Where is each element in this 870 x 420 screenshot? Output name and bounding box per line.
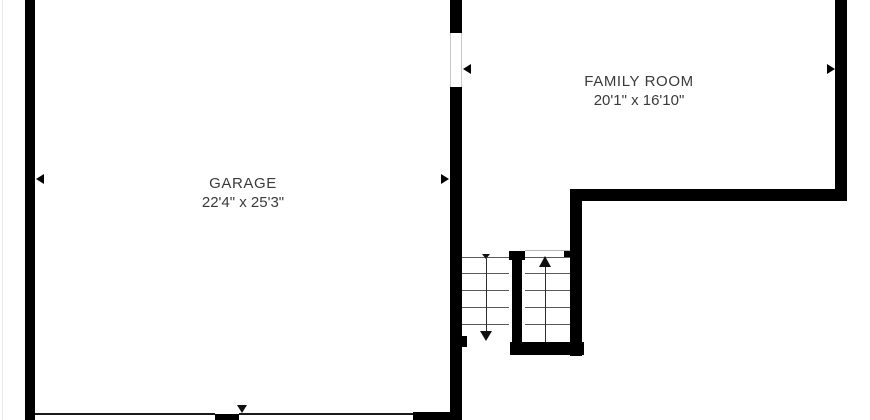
stairs-up-arrow-shaft	[545, 267, 546, 342]
room-name: GARAGE	[202, 174, 284, 193]
room-label-garage: GARAGE 22'4" x 25'3"	[202, 174, 284, 212]
wall-bottom-segment-right	[413, 412, 462, 420]
wall-left-outer	[25, 0, 35, 420]
edge-artifact-line	[2, 0, 3, 420]
room-name: FAMILY ROOM	[584, 72, 693, 91]
tread-line	[525, 307, 570, 308]
wall-familyroom-bottom	[570, 189, 847, 201]
wall-bottom-segment-left	[215, 414, 239, 420]
wall-middle-notch	[462, 336, 467, 347]
dimension-arrow-down-icon	[237, 405, 247, 413]
floorplan-canvas: GARAGE 22'4" x 25'3" FAMILY ROOM 20'1" x…	[0, 0, 870, 420]
garage-door-line-right	[239, 413, 413, 415]
garage-door-line-left	[35, 413, 215, 415]
dimension-arrow-left-icon	[463, 64, 471, 74]
room-dimensions: 20'1" x 16'10"	[584, 91, 693, 110]
room-label-family-room: FAMILY ROOM 20'1" x 16'10"	[584, 72, 693, 110]
wall-middle-upper	[450, 0, 462, 33]
dimension-arrow-right-icon	[827, 64, 835, 74]
wall-stair-bottom	[510, 342, 584, 355]
wall-middle-lower	[450, 87, 462, 420]
wall-stair-newel	[512, 258, 522, 342]
tread-line	[525, 273, 570, 274]
dimension-arrow-right-icon	[441, 174, 449, 184]
stairs-up-arrow-head	[539, 256, 551, 267]
stairs-down-arrow-head	[480, 331, 492, 341]
opening-garage-family	[450, 33, 462, 87]
dimension-arrow-left-icon	[36, 174, 44, 184]
stairs-down-arrow-shaft	[486, 257, 487, 333]
wall-right-outer	[835, 0, 847, 201]
tread-line	[525, 324, 570, 325]
wall-stair-right	[570, 189, 582, 356]
room-dimensions: 22'4" x 25'3"	[202, 193, 284, 212]
tread-line	[525, 290, 570, 291]
tread-line	[525, 250, 570, 251]
